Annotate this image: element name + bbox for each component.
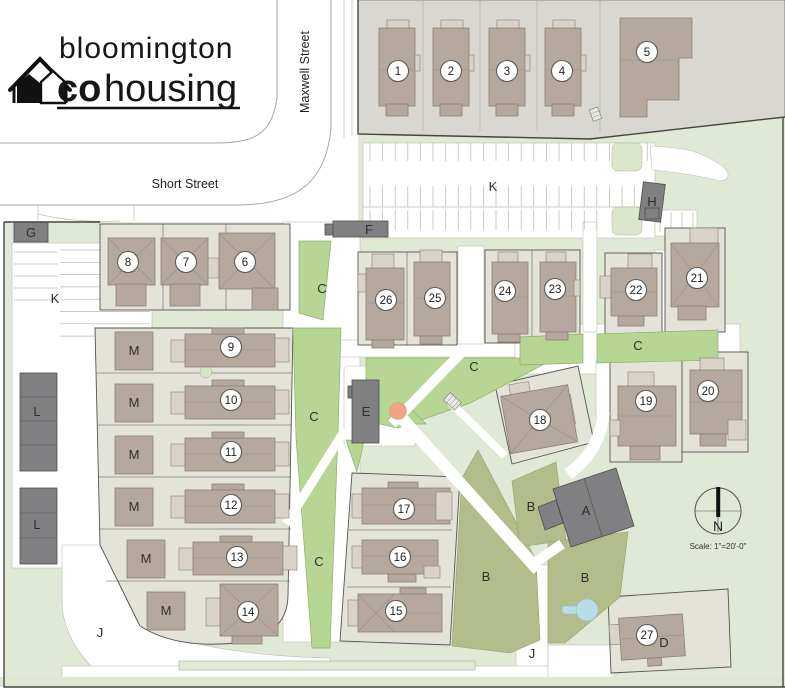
house-marker-15: 15 <box>386 601 407 622</box>
house-number: 19 <box>640 396 653 408</box>
area-label-k: K <box>51 291 60 306</box>
house-number: 12 <box>225 500 238 512</box>
house-number: 16 <box>394 552 407 564</box>
house-marker-17: 17 <box>394 499 415 520</box>
area-label-c: C <box>317 281 326 296</box>
house-number: 18 <box>534 415 547 427</box>
area-label-e: E <box>362 404 371 419</box>
house-number: 5 <box>644 47 650 59</box>
house-number: 24 <box>499 286 512 298</box>
house-number: 7 <box>183 257 189 269</box>
house-marker-8: 8 <box>118 252 139 273</box>
pond <box>576 599 598 621</box>
house-marker-10: 10 <box>221 390 242 411</box>
house-marker-7: 7 <box>176 252 197 273</box>
area-label-j: J <box>529 646 536 661</box>
area-label-h: H <box>647 194 656 209</box>
house-marker-23: 23 <box>545 279 566 300</box>
site-plan-svg: 1234567891011121314151617181920212223242… <box>0 0 785 690</box>
house-number: 23 <box>549 284 562 296</box>
building-l-garage-1 <box>20 373 57 471</box>
house-marker-16: 16 <box>390 547 411 568</box>
logo-text-bloomington: bloomington <box>59 32 233 65</box>
house-number: 20 <box>702 386 715 398</box>
house-number: 14 <box>242 607 255 619</box>
house-number: 17 <box>398 504 411 516</box>
area-label-j: J <box>97 625 104 640</box>
house-number: 6 <box>242 257 248 269</box>
house-marker-13: 13 <box>227 547 248 568</box>
area-label-a: A <box>582 503 591 518</box>
area-label-m: M <box>129 395 140 410</box>
house-marker-24: 24 <box>495 281 516 302</box>
house-number: 11 <box>225 447 237 459</box>
house-number: 3 <box>504 66 510 78</box>
house-marker-4: 4 <box>552 61 573 82</box>
house-marker-9: 9 <box>221 337 242 358</box>
area-label-m: M <box>129 343 140 358</box>
house-number: 4 <box>559 66 566 78</box>
house-marker-5: 5 <box>637 42 658 63</box>
house-number: 25 <box>429 293 442 305</box>
house-marker-3: 3 <box>497 61 518 82</box>
scale-label: Scale: 1"=20'-0" <box>690 542 747 551</box>
area-label-l: L <box>33 404 40 419</box>
house-marker-14: 14 <box>238 602 259 623</box>
area-label-c: C <box>309 409 318 424</box>
house-marker-21: 21 <box>687 268 708 289</box>
house-marker-27: 27 <box>637 625 658 646</box>
house-marker-1: 1 <box>388 61 409 82</box>
short-street-label: Short Street <box>152 177 219 191</box>
house-marker-11: 11 <box>221 442 242 463</box>
area-label-c: C <box>314 554 323 569</box>
area-label-b: B <box>581 570 590 585</box>
area-label-m: M <box>161 603 172 618</box>
house-number: 10 <box>225 395 238 407</box>
area-label-c: C <box>469 359 478 374</box>
house-number: 8 <box>125 257 131 269</box>
area-label-f: F <box>365 222 373 237</box>
house-number: 13 <box>231 552 244 564</box>
area-label-c: C <box>633 338 642 353</box>
area-label-k: K <box>489 179 498 194</box>
house-marker-22: 22 <box>626 280 647 301</box>
area-label-b: B <box>482 569 491 584</box>
house-number: 9 <box>228 342 234 354</box>
house-marker-26: 26 <box>376 290 397 311</box>
area-label-b: B <box>527 499 536 514</box>
house-marker-6: 6 <box>235 252 256 273</box>
house-number: 1 <box>395 66 401 78</box>
house-number: 27 <box>641 630 654 642</box>
tree-marker <box>390 403 407 420</box>
logo-text-co: co <box>57 68 101 110</box>
compass-north-label: N <box>713 518 723 534</box>
house-marker-25: 25 <box>425 288 446 309</box>
area-label-d: D <box>659 635 668 650</box>
shed <box>645 208 659 219</box>
house-number: 22 <box>630 285 643 297</box>
house-marker-2: 2 <box>441 61 462 82</box>
area-label-m: M <box>141 551 152 566</box>
area-label-l: L <box>33 517 40 532</box>
house-20 <box>690 358 746 446</box>
house-marker-20: 20 <box>698 381 719 402</box>
maxwell-street-label: Maxwell Street <box>298 30 312 112</box>
area-label-m: M <box>129 447 140 462</box>
house-number: 26 <box>380 295 393 307</box>
area-label-g: G <box>26 225 36 240</box>
house-number: 15 <box>390 606 403 618</box>
logo-text-housing: housing <box>104 68 237 110</box>
house-number: 21 <box>691 273 704 285</box>
house-marker-18: 18 <box>530 410 551 431</box>
house-number: 2 <box>448 66 454 78</box>
house-marker-12: 12 <box>221 495 242 516</box>
building-f <box>333 221 388 237</box>
site-plan: 1234567891011121314151617181920212223242… <box>0 0 785 690</box>
area-label-m: M <box>129 499 140 514</box>
house-marker-19: 19 <box>636 391 657 412</box>
compass-needle <box>716 487 720 517</box>
